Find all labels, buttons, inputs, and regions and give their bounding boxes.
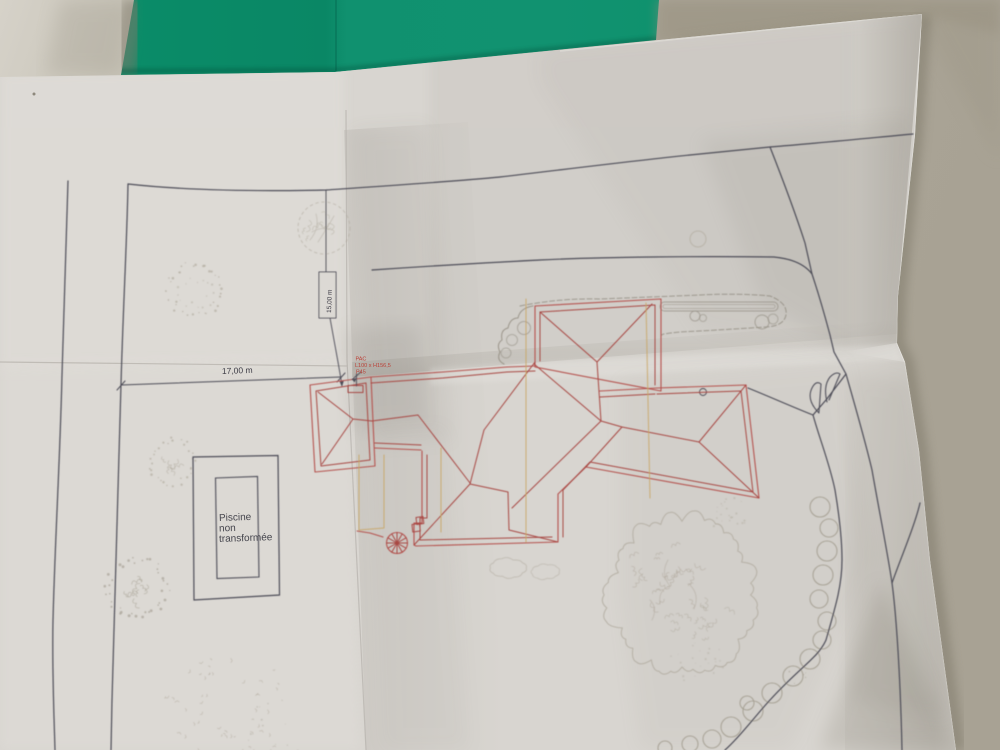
svg-text:P45: P45 (356, 370, 366, 376)
svg-text:15,00 m: 15,00 m (326, 289, 334, 313)
svg-text:transformée: transformée (219, 532, 273, 545)
svg-text:PAC: PAC (356, 357, 367, 363)
svg-text:L100 x H156,5: L100 x H156,5 (355, 363, 391, 369)
svg-text:17,00 m: 17,00 m (222, 365, 253, 376)
